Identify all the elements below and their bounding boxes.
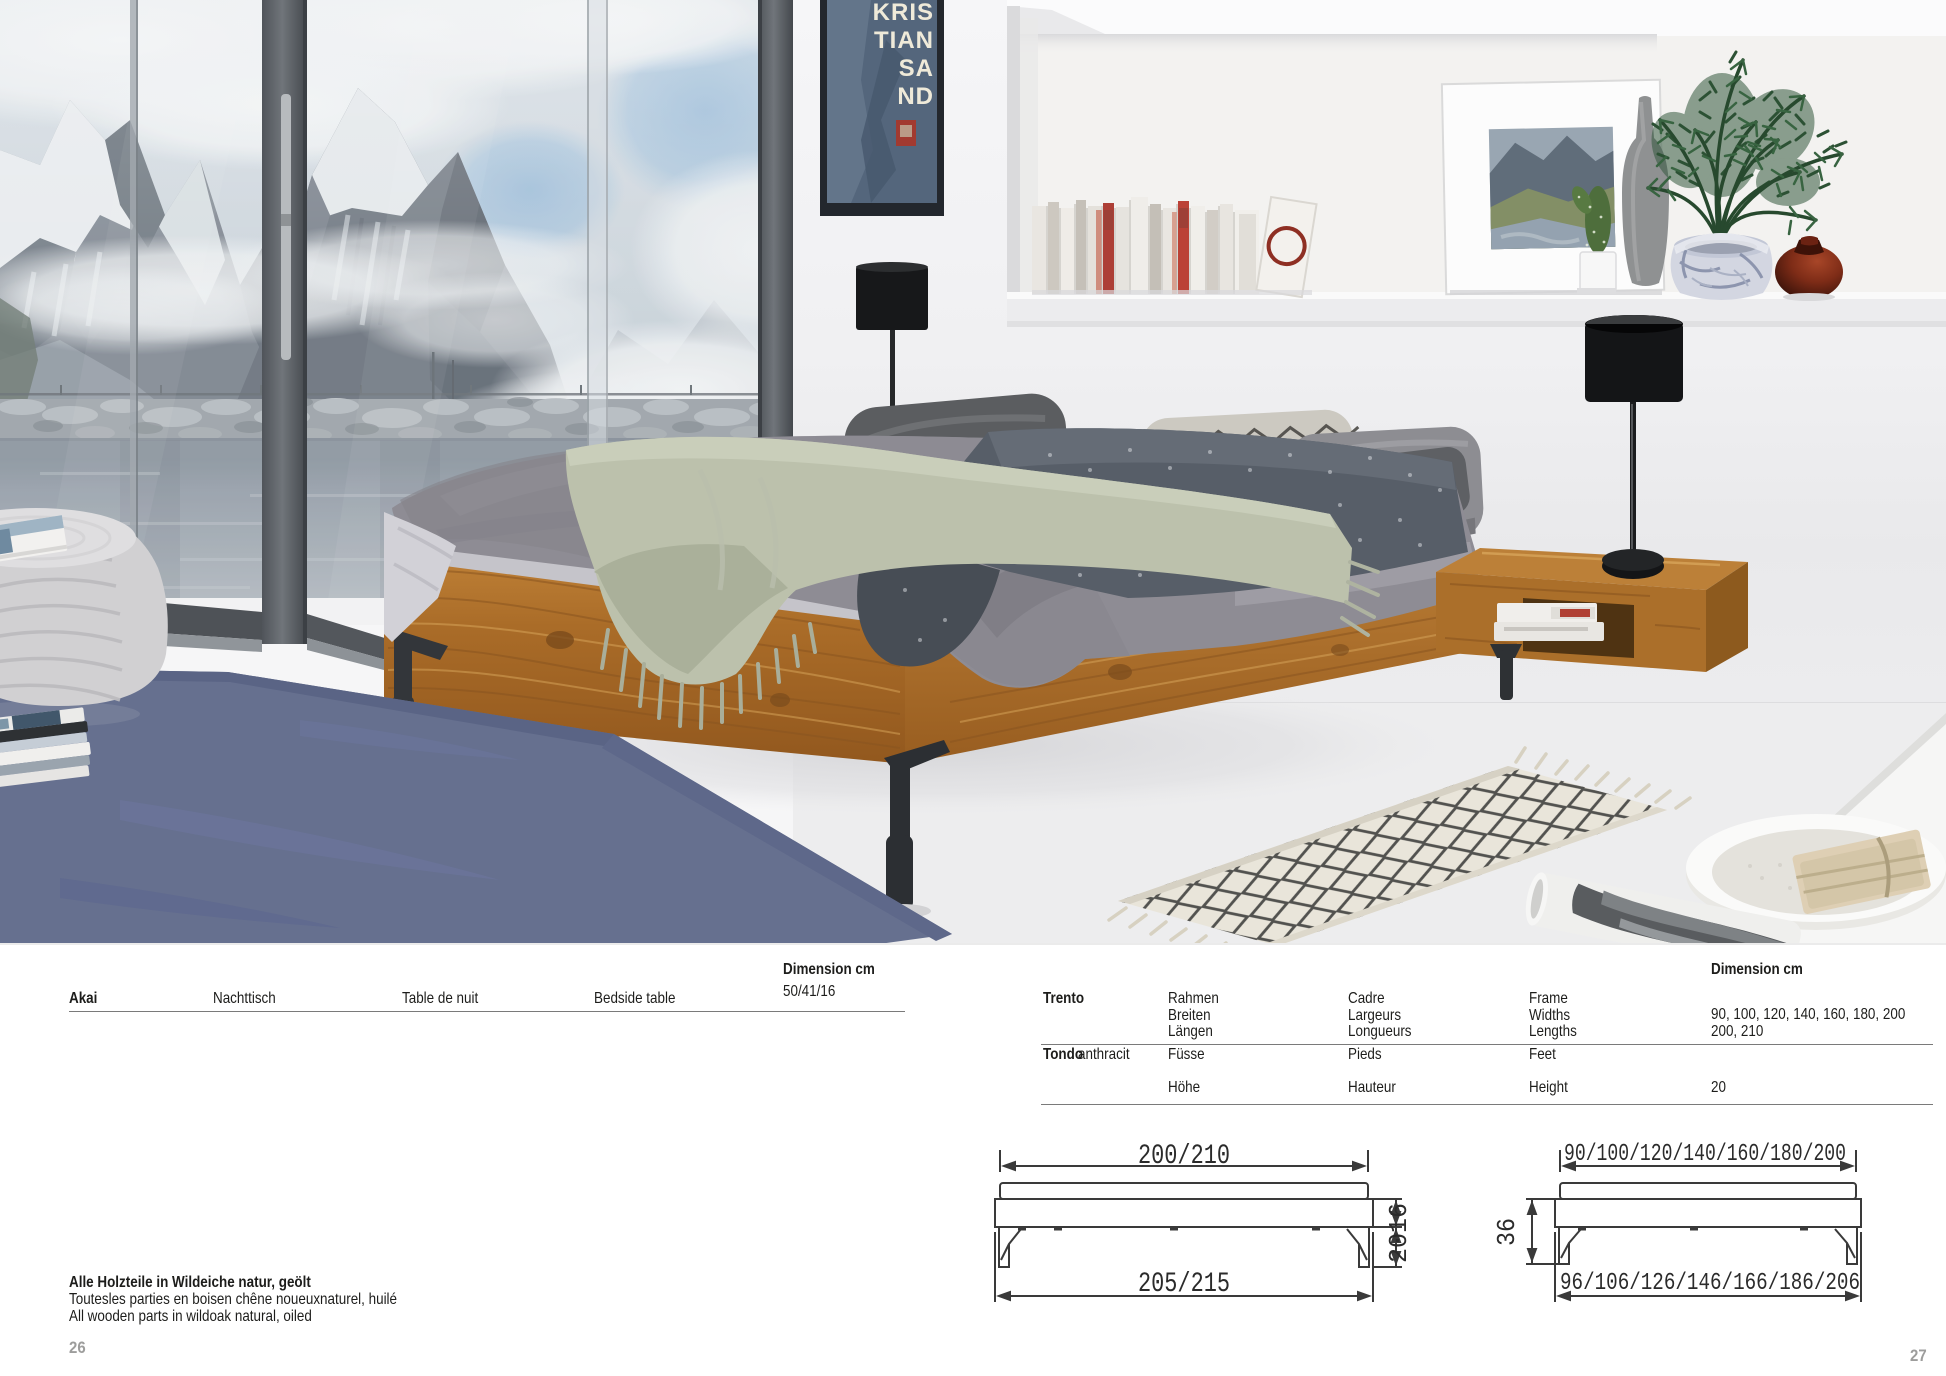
svg-text:2016: 2016 — [1384, 1203, 1414, 1263]
svg-text:ND: ND — [897, 83, 934, 110]
svg-text:KRIS: KRIS — [873, 0, 934, 26]
svg-text:96/106/126/146/166/186/206: 96/106/126/146/166/186/206 — [1560, 1270, 1860, 1297]
svg-text:200/210: 200/210 — [1138, 1141, 1230, 1172]
svg-text:TIAN: TIAN — [874, 27, 934, 54]
svg-text:SA: SA — [899, 55, 934, 82]
svg-text:90/100/120/140/160/180/200: 90/100/120/140/160/180/200 — [1564, 1141, 1846, 1168]
svg-text:205/215: 205/215 — [1138, 1269, 1230, 1300]
svg-text:36: 36 — [1492, 1218, 1522, 1246]
